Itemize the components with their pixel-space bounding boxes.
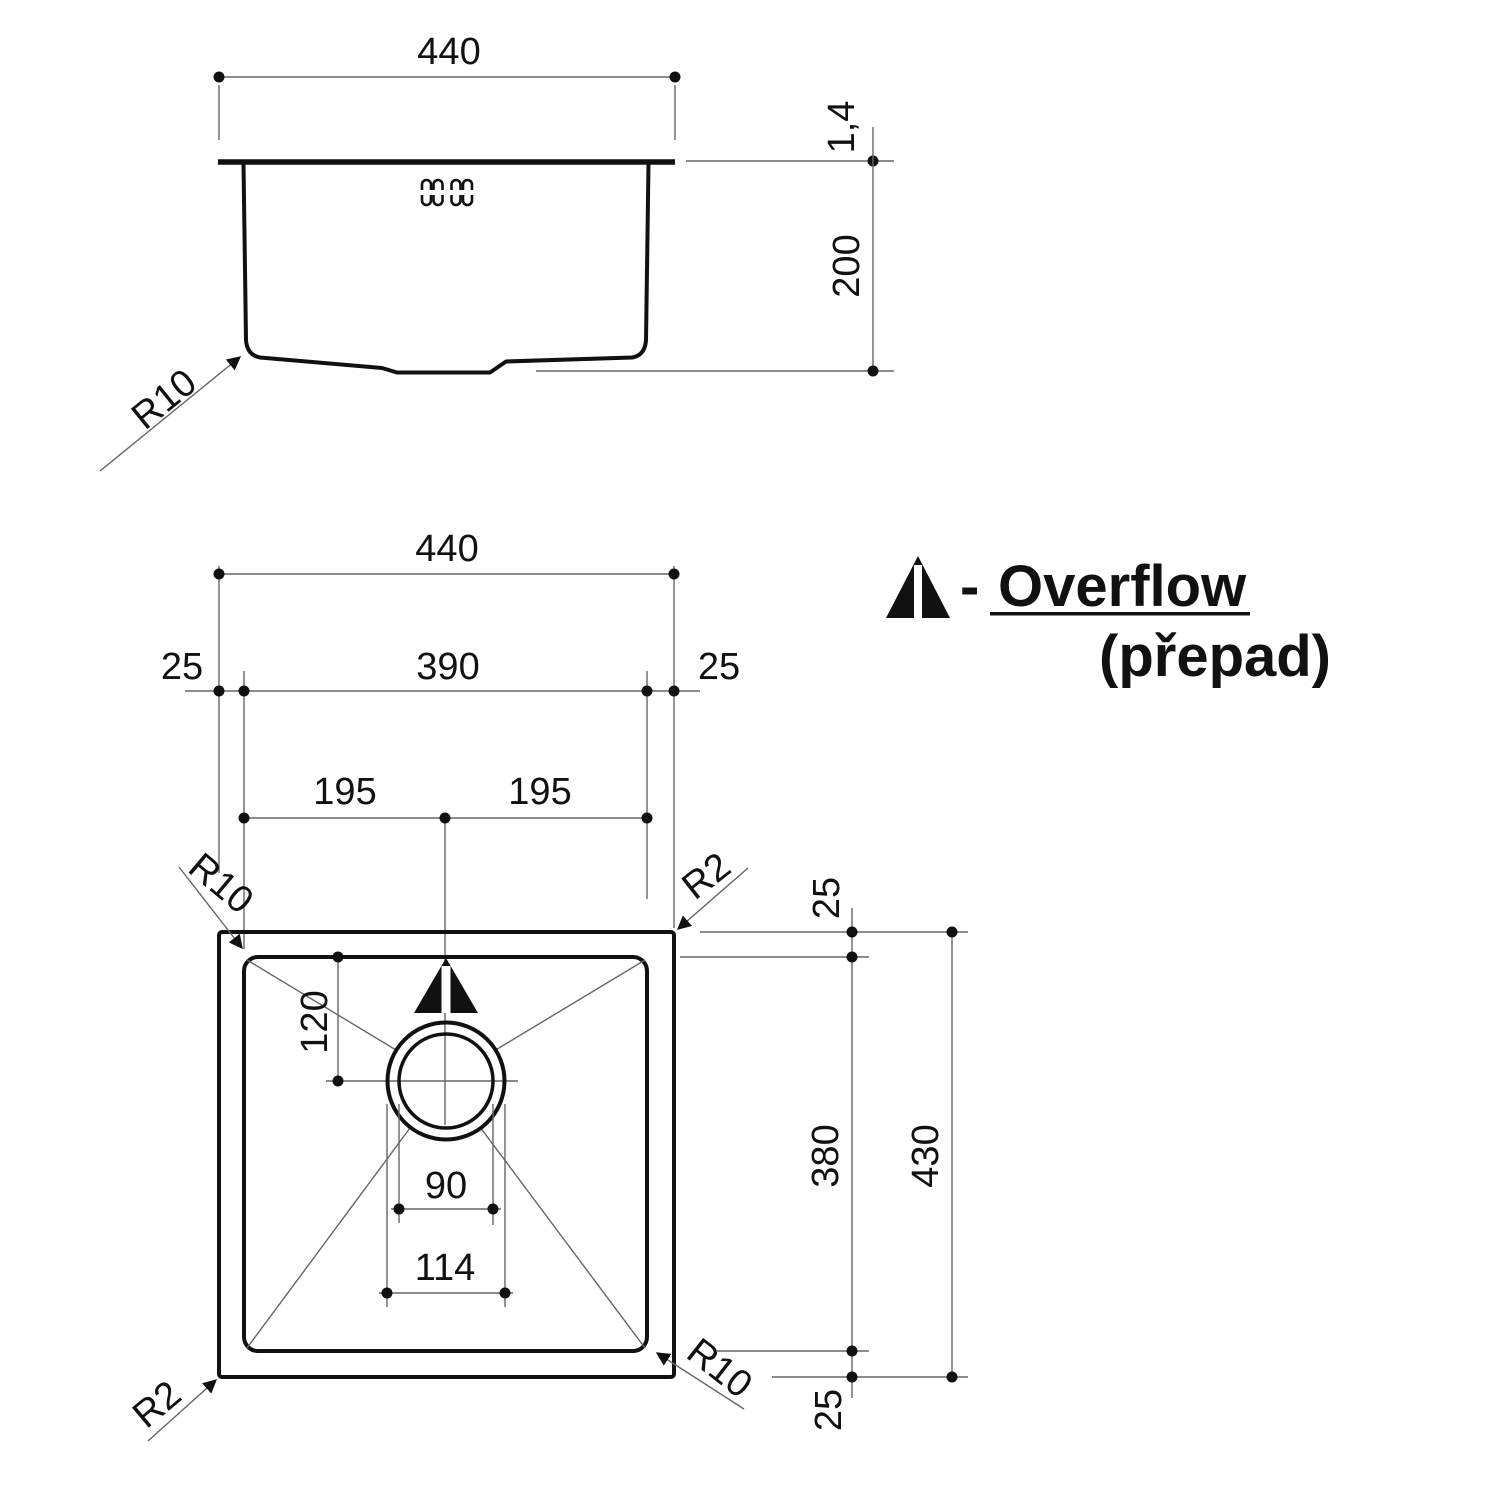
radius-side-bottom: R10 <box>100 357 240 471</box>
dim-dot <box>333 1076 344 1087</box>
legend-triangle-stripe <box>914 565 922 618</box>
radius-inner-bottom-right-label: R10 <box>679 1331 760 1407</box>
plan-view: 440 25 390 25 195 195 <box>125 528 968 1441</box>
dim-offset-bottom-label: 25 <box>808 1389 850 1431</box>
diagonal-line <box>494 960 645 1051</box>
dim-dot <box>670 72 681 83</box>
dim-dot <box>214 686 225 697</box>
dim-dot <box>847 1372 858 1383</box>
legend-term: Overflow <box>998 554 1247 619</box>
diagonal-line <box>247 1128 410 1348</box>
dim-inner-width-label: 390 <box>416 646 479 688</box>
dim-offset-right-label: 25 <box>698 646 740 688</box>
drawing-canvas: 440 1,4 200 R10 <box>0 0 1500 1500</box>
dim-plan-outer-width: 440 <box>214 528 680 928</box>
dim-dot <box>669 569 680 580</box>
legend-translation: (přepad) <box>1099 624 1331 689</box>
dim-dot <box>239 686 250 697</box>
legend-term-underline <box>990 612 1250 616</box>
dim-plan-outer-width-label: 440 <box>415 528 478 570</box>
radius-side-bottom-label: R10 <box>124 361 205 438</box>
dim-dot <box>214 72 225 83</box>
dim-drain-from-top: 120 <box>294 952 344 1087</box>
dim-drain-hole: 90 <box>391 1104 501 1225</box>
dim-dot <box>333 952 344 963</box>
dim-half-left-label: 195 <box>313 771 376 813</box>
dim-dot <box>488 1204 499 1215</box>
dim-depth-label: 200 <box>826 234 868 297</box>
dim-dot <box>214 569 225 580</box>
radius-outer-top-right-label: R2 <box>675 845 739 908</box>
radius-inner-top-left-label: R10 <box>181 845 261 922</box>
radius-outer-bottom-left: R2 <box>125 1373 216 1441</box>
dim-plan-center: 195 195 <box>239 771 653 1125</box>
dim-dot <box>947 1372 958 1383</box>
dim-dot <box>947 927 958 938</box>
radius-outer-bottom-left-label: R2 <box>125 1373 189 1436</box>
dim-drain-from-top-label: 120 <box>294 990 336 1053</box>
dim-dot <box>394 1204 405 1215</box>
drain <box>326 1023 518 1140</box>
dim-offset-top-label: 25 <box>806 877 848 919</box>
dim-offset-left-label: 25 <box>161 646 203 688</box>
dim-dot <box>847 1346 858 1357</box>
side-view: 440 1,4 200 R10 <box>100 31 894 471</box>
dim-dot <box>239 813 250 824</box>
dim-drain-hole-label: 90 <box>425 1165 467 1207</box>
legend-separator: - <box>960 554 979 619</box>
dim-side-width-label: 440 <box>417 31 480 73</box>
dim-dot <box>382 1288 393 1299</box>
overflow-slot-gap <box>417 190 477 195</box>
sink-technical-drawing: 440 1,4 200 R10 <box>0 0 1500 1500</box>
dim-rim-thickness-label: 1,4 <box>821 101 863 154</box>
legend-overflow-triangle-icon <box>886 556 950 618</box>
dim-dot <box>868 366 879 377</box>
dim-dot <box>642 813 653 824</box>
overflow-triangle-icon <box>414 958 478 1013</box>
side-view-bowl-outline <box>244 164 649 373</box>
dim-half-right-label: 195 <box>508 771 571 813</box>
dim-dot <box>669 686 680 697</box>
dim-inner-depth-label: 380 <box>805 1124 847 1187</box>
dim-dot <box>847 927 858 938</box>
dim-drain-flange-label: 114 <box>415 1247 476 1289</box>
legend: - Overflow (přepad) <box>886 554 1331 689</box>
dim-dot <box>642 686 653 697</box>
dim-dot <box>847 952 858 963</box>
overflow-triangle-stripe <box>442 966 451 1013</box>
overflow-holes-icon <box>417 180 477 205</box>
dim-dot <box>500 1288 511 1299</box>
dim-side-width: 440 <box>214 31 681 140</box>
dim-dot <box>440 813 451 824</box>
dim-outer-depth-label: 430 <box>905 1124 947 1187</box>
radius-outer-top-right: R2 <box>675 845 748 929</box>
dim-rim-thickness: 1,4 <box>686 101 894 167</box>
